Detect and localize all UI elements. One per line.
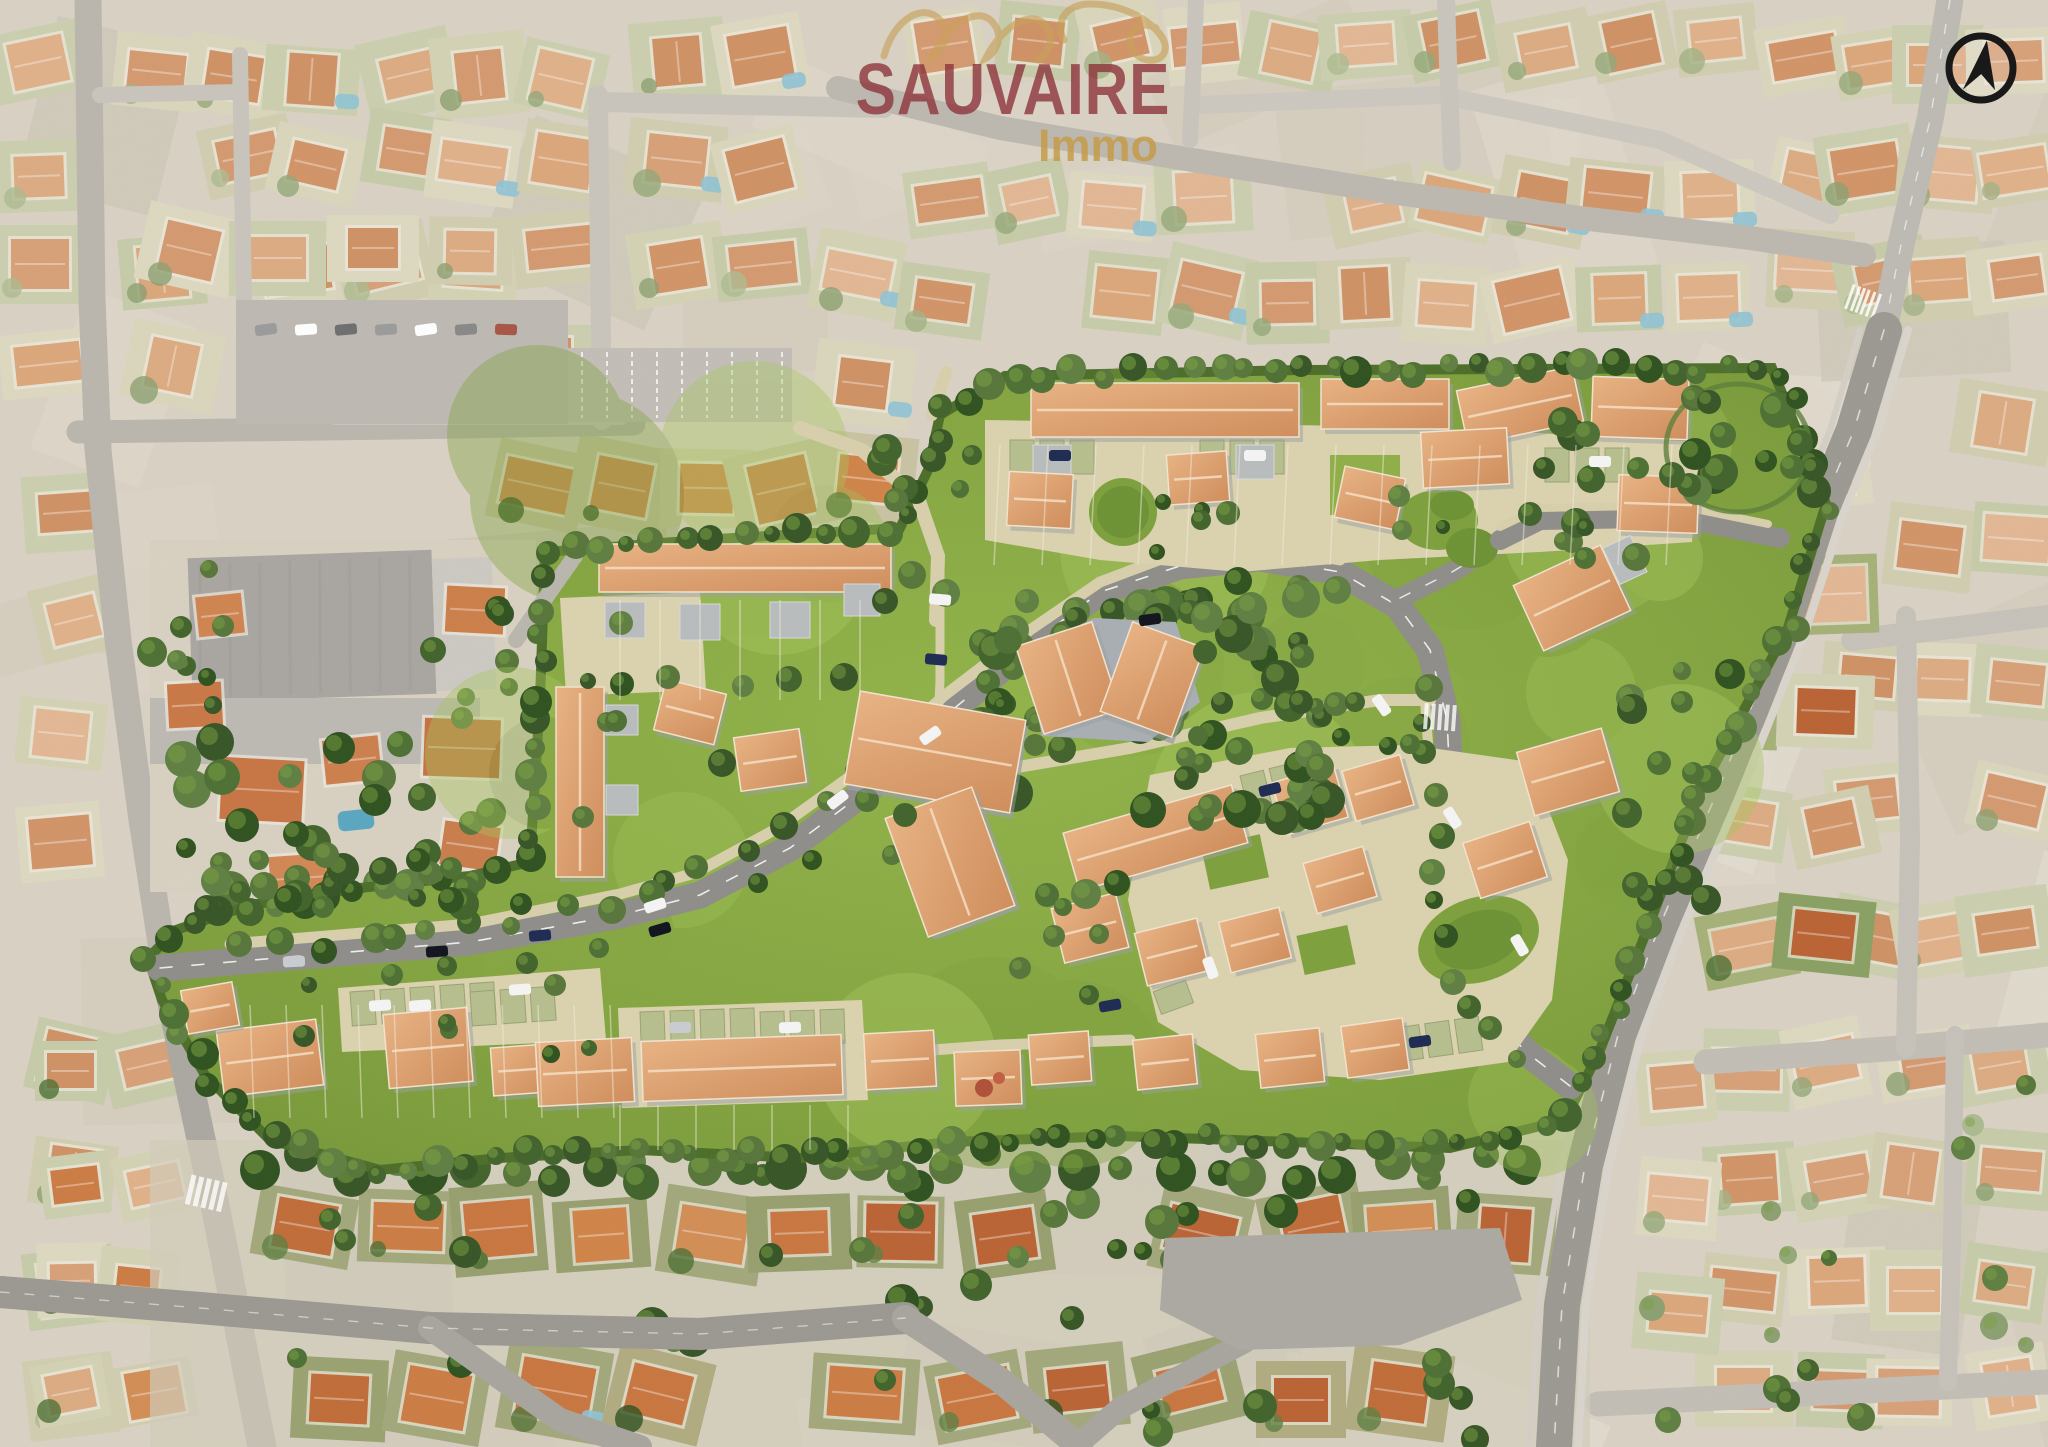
svg-text:SAUVAIRE: SAUVAIRE: [856, 50, 1171, 130]
svg-text:Immo: Immo: [1038, 120, 1158, 171]
